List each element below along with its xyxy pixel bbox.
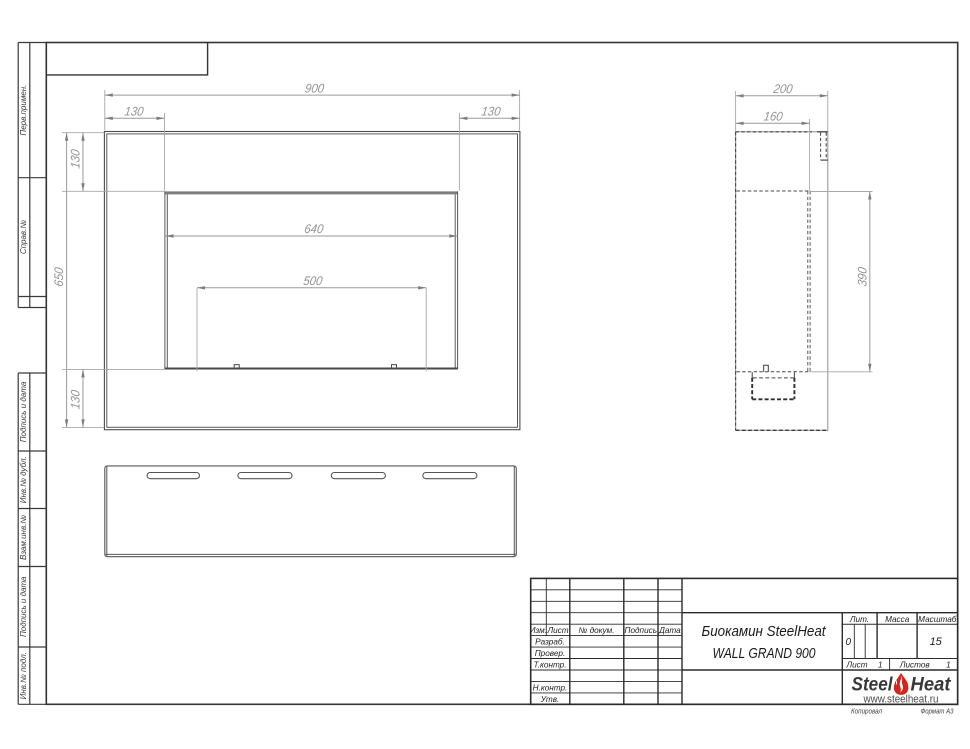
svg-text:Т.контр.: Т.контр. [533,660,566,669]
svg-text:500: 500 [302,274,323,288]
svg-text:200: 200 [772,82,794,96]
svg-text:Взам.инв.№: Взам.инв.№ [19,515,28,560]
svg-text:640: 640 [303,222,324,236]
svg-text:Н.контр.: Н.контр. [533,683,568,692]
svg-text:900: 900 [304,81,325,95]
svg-text:Подпись и дата: Подпись и дата [19,576,28,637]
svg-text:Изм.: Изм. [530,626,547,635]
svg-text:Масштаб: Масштаб [918,615,957,624]
svg-text:130: 130 [480,105,501,119]
svg-text:1: 1 [946,660,951,669]
svg-text:15: 15 [930,636,943,648]
svg-text:Подпись: Подпись [625,626,657,635]
svg-text:Формат А3: Формат А3 [921,706,955,715]
svg-text:1: 1 [878,660,883,669]
svg-text:Масса: Масса [885,615,910,624]
svg-text:Инв.№ подл.: Инв.№ подл. [19,652,28,699]
svg-text:0: 0 [846,637,852,648]
svg-text:Провер.: Провер. [535,649,566,658]
svg-text:Листов: Листов [899,660,931,669]
svg-text:130: 130 [69,148,83,169]
svg-text:Подпись и дата: Подпись и дата [19,381,28,442]
svg-text:Инв.№ дубл.: Инв.№ дубл. [19,456,28,503]
svg-text:Лит.: Лит. [849,615,869,624]
svg-text:Разраб.: Разраб. [535,638,565,647]
svg-text:Лист: Лист [546,626,568,635]
svg-text:Перв.примен.: Перв.примен. [19,85,28,136]
svg-text:Справ.№: Справ.№ [19,220,28,254]
svg-text:650: 650 [52,266,66,287]
svg-text:Лист: Лист [845,660,867,669]
svg-text:www.steelheat.ru: www.steelheat.ru [863,694,939,706]
svg-text:Steel: Steel [852,675,894,696]
svg-text:160: 160 [763,109,784,123]
svg-text:Биокамин SteelHeat: Биокамин SteelHeat [702,624,827,640]
svg-text:№ докум.: № докум. [578,626,614,635]
svg-text:130: 130 [69,389,83,410]
svg-text:Дата: Дата [658,626,681,635]
svg-text:Копировал: Копировал [851,706,883,715]
svg-text:130: 130 [124,105,145,119]
svg-text:390: 390 [855,266,869,287]
svg-text:Утв.: Утв. [540,695,560,704]
svg-text:Heat: Heat [911,675,952,696]
svg-text:WALL GRAND 900: WALL GRAND 900 [713,646,816,662]
